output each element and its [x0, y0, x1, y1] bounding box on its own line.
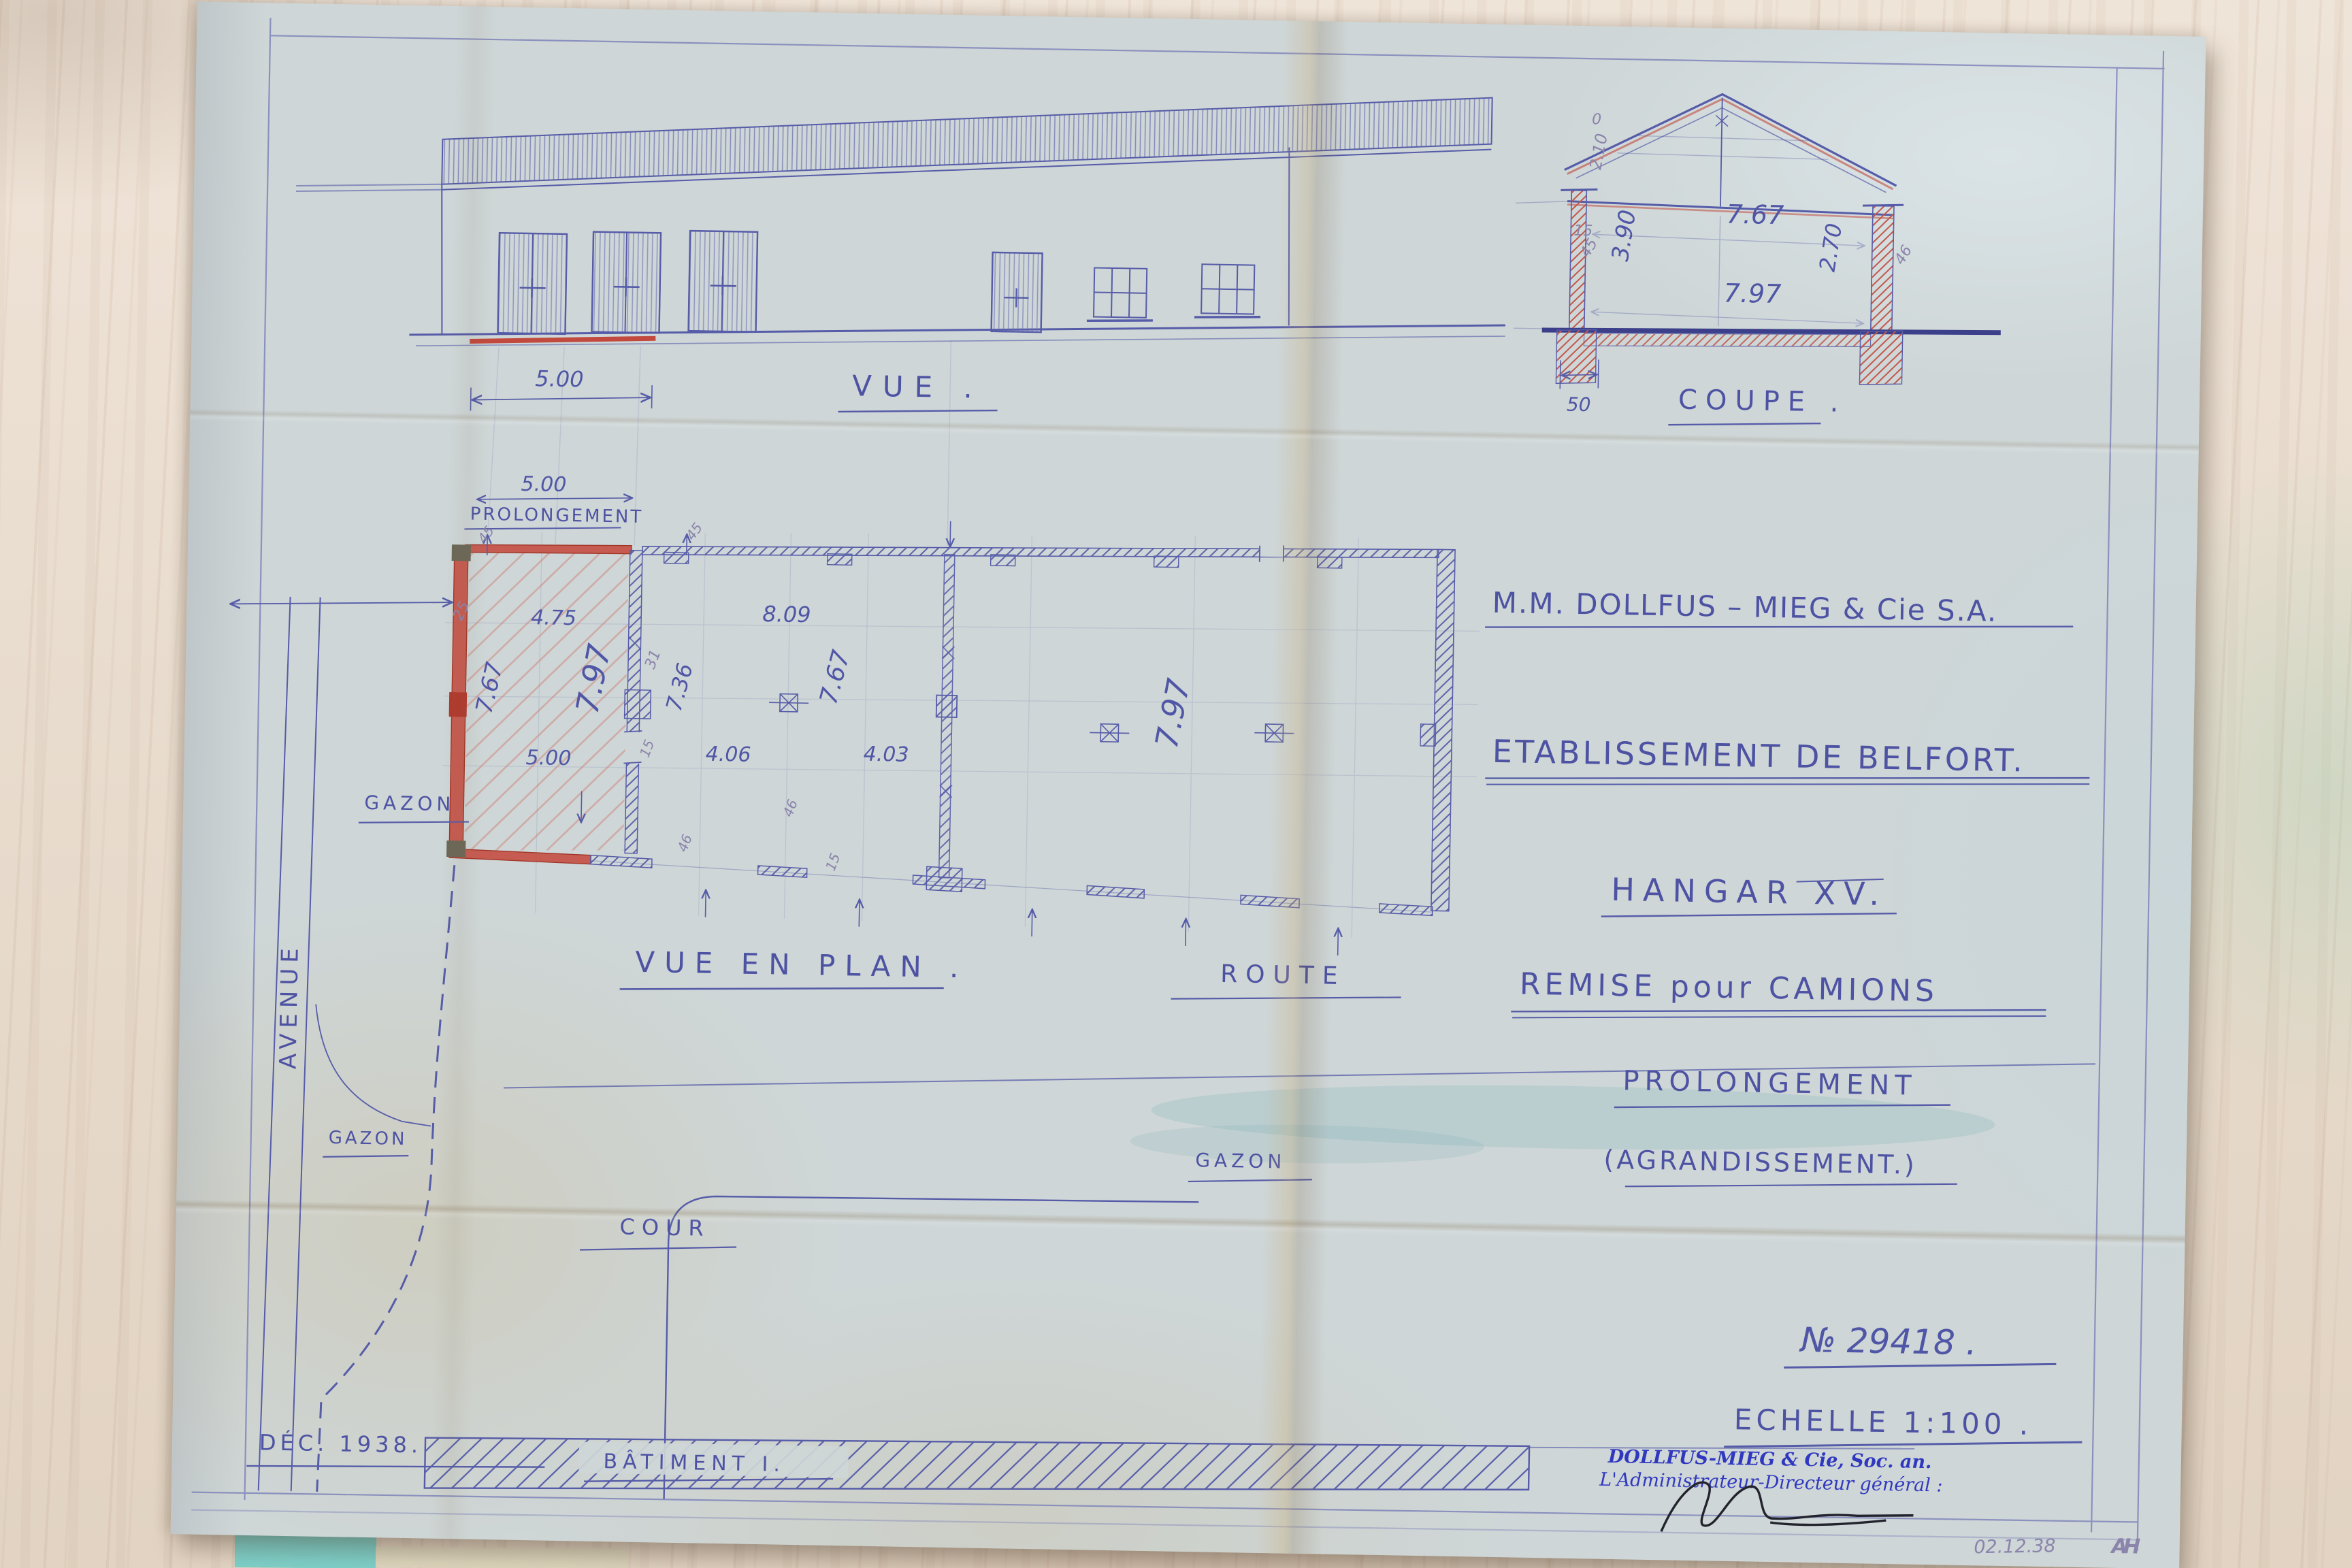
gazon-left-label: GAZON — [364, 791, 455, 815]
plan-bay-b: 4.03 — [863, 742, 909, 767]
corner-block-bottom — [446, 840, 465, 857]
section-footing-label: 50 — [1567, 393, 1591, 416]
company-name: M.M. DOLLFUS – MIEG & Cie S.A. — [1492, 586, 1997, 628]
plan-tick-46b: 46 — [674, 832, 696, 854]
elevation-door-small — [992, 252, 1043, 332]
blueprint-sheet: 5.00 VUE . — [171, 1, 2206, 1568]
route-label: ROUTE — [1220, 960, 1346, 990]
plan-title: VUE EN PLAN . — [635, 945, 968, 985]
section-tick-46: 46 — [1891, 242, 1916, 267]
elevation-door-1 — [497, 233, 567, 334]
corner-block-top — [452, 544, 471, 561]
teal-card-under-paper — [235, 1533, 377, 1568]
section-title: COUPE . — [1678, 384, 1847, 418]
pencil-initials: AH — [2110, 1535, 2140, 1559]
doc-info: № 29418 . ECHELLE 1:100 . DOLLFUS-MIEG &… — [1597, 1317, 2144, 1561]
avenue-label: AVENUE — [275, 943, 304, 1069]
elevation-bay-dim-label: 5.00 — [535, 365, 584, 392]
plan-inner-width: 4.75 — [531, 606, 576, 630]
drawing-number: № 29418 . — [1798, 1320, 1977, 1363]
cour-label: COUR — [619, 1214, 710, 1241]
plan-hall-width: 8.09 — [762, 601, 811, 627]
extension-note: (AGRANDISSEMENT.) — [1603, 1145, 1917, 1180]
drawing-layer: 5.00 VUE . — [171, 1, 2206, 1568]
plan-tick-45b: 45 — [683, 519, 706, 543]
right-footing — [1859, 330, 1902, 385]
king-post — [1720, 98, 1722, 207]
elevation-title: VUE . — [852, 369, 984, 404]
cream-card-under-paper — [376, 1547, 627, 1568]
elevation-window-2 — [1194, 264, 1261, 318]
stamp-signatory-line: L'Administrateur-Directeur général : — [1599, 1469, 1943, 1497]
corner-curve — [314, 1004, 433, 1126]
section-tick-15: 15 — [1573, 223, 1592, 240]
plan-right-depth: 7.97 — [1148, 676, 1198, 751]
project-name: HANGAR XV. — [1611, 871, 1888, 913]
establishment-name: ETABLISSEMENT DE BELFORT. — [1492, 733, 2025, 779]
red-ground-highlight — [470, 335, 655, 344]
section-right-wall — [1871, 206, 1894, 333]
section-height-wall: 3.90 — [1607, 208, 1641, 263]
plan-old-wall: 31 — [642, 647, 664, 671]
stamp-company-line: DOLLFUS-MIEG & Cie, Soc. an. — [1607, 1446, 1932, 1473]
property-dashed-line — [317, 863, 455, 1494]
elevation-door-3 — [689, 231, 758, 332]
plan-tick-46a: 46 — [779, 797, 801, 819]
project-subtitle: REMISE pour CAMIONS — [1520, 967, 1939, 1009]
section-left-wall — [1569, 191, 1587, 329]
gazon-bottom-label: GAZON — [329, 1128, 408, 1149]
plan-tick-15b: 15 — [822, 851, 844, 872]
elevation-window-1 — [1087, 267, 1154, 322]
plan-bay-a: 4.06 — [705, 742, 751, 767]
red-wall-pilaster — [449, 692, 468, 717]
plan-tick-45a: 45 — [474, 523, 497, 546]
date-note-label: DÉC. 1938. — [259, 1429, 423, 1458]
plan-wall-bottom-segments — [590, 855, 1433, 916]
section-height-clear: 2.70 — [1814, 221, 1848, 273]
plan-hall-depth: 7.67 — [815, 647, 855, 707]
elevation-door-2 — [591, 232, 661, 333]
plan-width-mid: 5.00 — [525, 746, 571, 770]
plan-top-width: 5.00 — [521, 472, 566, 497]
section-width-bottom: 7.97 — [1723, 278, 1781, 309]
scale-label: ECHELLE 1:100 . — [1733, 1403, 2032, 1441]
extension-label: PROLONGEMENT — [1622, 1065, 1917, 1102]
plan-wall-bottom-red — [449, 849, 591, 864]
plan-depth-old: 7.36 — [661, 660, 698, 714]
elevation-view — [290, 77, 1509, 562]
alignment-dim — [230, 598, 452, 608]
batiment-label: BÂTIMENT I. — [603, 1449, 785, 1477]
plan-prolongement-label: PROLONGEMENT — [470, 504, 644, 527]
section-rise-zero: 0 — [1592, 111, 1601, 128]
pencil-date: 02.12.38 — [1974, 1535, 2056, 1558]
elevation-ground-line — [409, 306, 1505, 354]
plan-view — [440, 495, 1482, 958]
section-rise: 2.10 — [1586, 132, 1612, 171]
section-width-top: 7.67 — [1726, 199, 1784, 230]
photo-of-blueprint-on-desk: 5.00 VUE . — [0, 0, 2352, 1568]
gazon-right-label: GAZON — [1195, 1149, 1286, 1173]
